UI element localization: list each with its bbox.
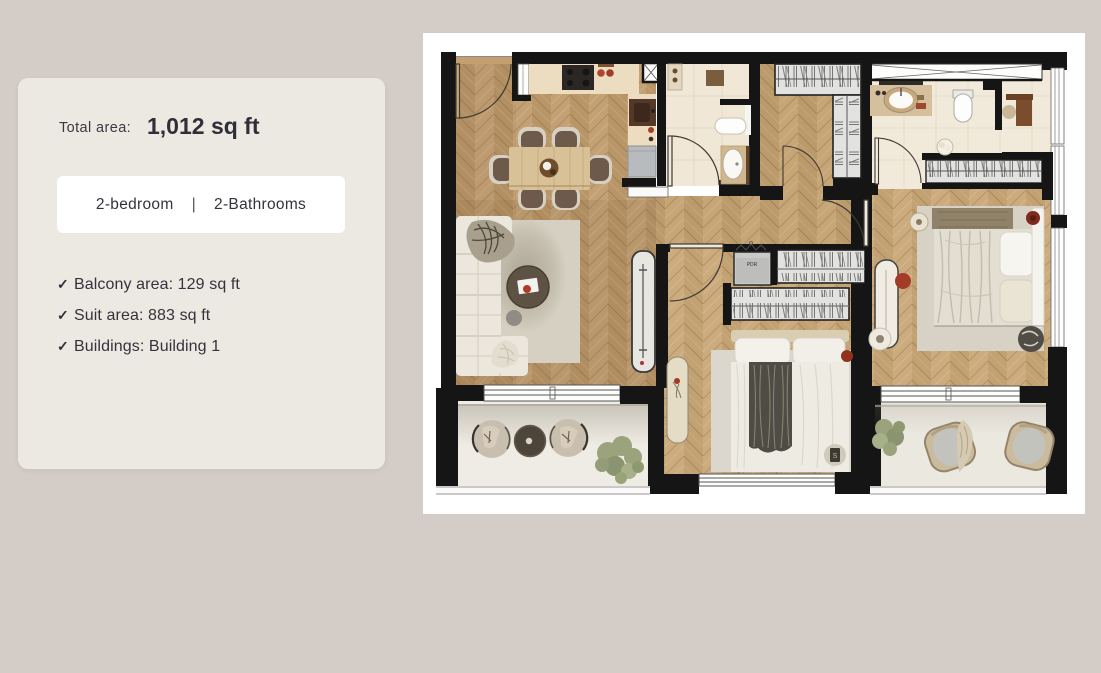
svg-text:PDR: PDR bbox=[747, 262, 758, 268]
svg-text:S: S bbox=[833, 453, 838, 460]
